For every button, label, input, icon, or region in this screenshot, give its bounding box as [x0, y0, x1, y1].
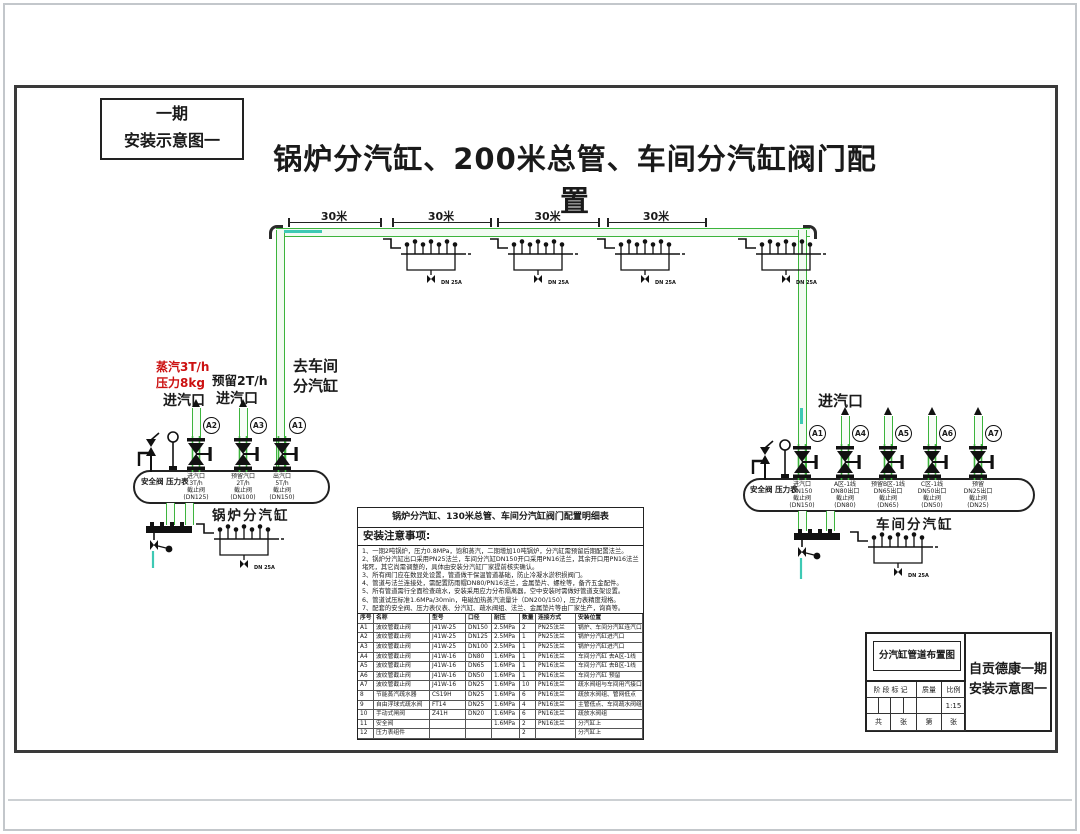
spec-cell: 车间分汽缸 预留 — [576, 672, 643, 681]
sheet-no-unit-cell: 张 — [942, 714, 966, 730]
valve-unit — [913, 444, 951, 480]
spec-cell: 2.5MPa — [492, 633, 520, 642]
steam-trap-assembly: DN 25A — [196, 521, 288, 571]
valve-tag-A3: A3 — [250, 417, 267, 434]
spec-data-row: A7波纹管截止阀J41W-16DN251.6MPa10PN16法兰疏水阀组与车间… — [358, 681, 643, 691]
spec-cell: 锅炉分汽缸进汽口 — [576, 633, 643, 642]
steam-trap-assembly: DN 25A — [383, 236, 475, 286]
valve-tag-A1: A1 — [809, 425, 826, 442]
spec-cell: 1.6MPa — [492, 701, 520, 710]
spec-cell — [492, 729, 520, 738]
valve-spec-line: 5T/h — [255, 480, 309, 487]
spec-cell: 口径 — [466, 614, 492, 623]
svg-text:DN 25A: DN 25A — [254, 565, 275, 571]
spec-cell: 安全阀 — [374, 720, 430, 729]
spec-cell: 1 — [520, 643, 536, 652]
dimension-tick — [705, 218, 707, 227]
condensate-highlight — [284, 230, 322, 233]
inlet2-label: 进汽口 — [216, 388, 258, 408]
spec-cell: PN16法兰 — [536, 691, 576, 700]
spec-cell: 9 — [358, 701, 374, 710]
valve-inlet-pipe — [239, 408, 248, 439]
spec-cell: 节能蒸汽疏水器 — [374, 691, 430, 700]
spec-data-row: 12压力表组件2分汽缸上 — [358, 729, 643, 739]
install-note: 2、锅炉分汽缸出口采用PN25法兰，车间分汽缸DN150开口采用PN16法兰，其… — [362, 556, 639, 572]
spec-cell: 1 — [520, 653, 536, 662]
spec-cell: DN100 — [466, 643, 492, 652]
valve-inlet-pipe — [884, 416, 893, 447]
spec-cell: 4 — [520, 701, 536, 710]
spec-cell: A1 — [358, 624, 374, 633]
flow-arrow-icon — [928, 407, 936, 415]
spec-cell: DN65 — [466, 662, 492, 671]
spec-cell: 锅炉分汽缸进汽口 — [576, 643, 643, 652]
install-note: 6、管道试压标准1.6MPa/30min，电磁加热蒸汽流量计（DN200/150… — [362, 597, 639, 605]
spec-cell: 耐压 — [492, 614, 520, 623]
condensate-highlight — [800, 408, 803, 424]
pipe-elbow-left-icon — [269, 225, 283, 239]
spec-cell: 1 — [520, 672, 536, 681]
valve-spec-line: 出汽口 — [255, 473, 309, 480]
steam-rate-label: 蒸汽3T/h — [156, 358, 209, 375]
spec-cell: 疏放水阀组、管网低点 — [576, 691, 643, 700]
dimension-label: 30米 — [321, 208, 347, 224]
spec-cell: 序号 — [358, 614, 374, 623]
spec-cell: 疏放水阀组 — [576, 710, 643, 719]
spec-cell — [430, 720, 466, 729]
valve-inlet-pipe — [928, 416, 937, 447]
steam-trap-assembly: DN 25A — [597, 236, 689, 286]
spec-cell: PN16法兰 — [536, 701, 576, 710]
spec-cell: PN16法兰 — [536, 681, 576, 690]
svg-text:DN 25A: DN 25A — [796, 280, 817, 286]
valve-spec-line: DN25出口 — [951, 488, 1005, 495]
stage-line1: 一期 — [102, 100, 242, 127]
install-note: 7、配套的安全阀、压力表仪表、分汽缸、疏水阀组、法兰、金属垫片等由厂家生产，询商… — [362, 605, 639, 613]
valve-spec-table: 序号名称型号口径耐压数量连接方式安装位置A1波纹管截止阀J41W-25DN150… — [358, 613, 643, 739]
spec-cell: 2 — [520, 720, 536, 729]
spec-cell: 压力表组件 — [374, 729, 430, 738]
empty-cell — [904, 698, 917, 714]
spec-cell: DN25 — [466, 701, 492, 710]
valve-unit — [224, 436, 262, 472]
dimension-tick — [497, 218, 499, 227]
spec-cell: 2 — [520, 624, 536, 633]
spec-cell: J41W-16 — [430, 681, 466, 690]
quality-cell: 质量 — [917, 682, 942, 698]
valve-unit — [959, 444, 997, 480]
project-line1: 自贡德康一期 — [966, 660, 1050, 680]
valve-tag-A1: A1 — [289, 417, 306, 434]
steam-trap-assembly-icon: DN 25A — [490, 236, 582, 286]
install-note: 5、所有管道需行全面检查疏水，安装采用应力分布隔离器，空中安装时需做好管道支架设… — [362, 588, 639, 596]
spec-cell: A3 — [358, 643, 374, 652]
spec-cell: FT14 — [430, 701, 466, 710]
spec-cell: 名称 — [374, 614, 430, 623]
spec-cell: 分汽缸上 — [576, 720, 643, 729]
globe-valve-icon — [959, 444, 997, 480]
valve-spec-line: (DN150) — [255, 494, 309, 501]
sheet-no-cell: 第 — [917, 714, 942, 730]
spec-cell: DN25 — [466, 681, 492, 690]
dimension-tick — [380, 218, 382, 227]
svg-text:DN 25A: DN 25A — [441, 280, 462, 286]
spec-cell: PN25法兰 — [536, 624, 576, 633]
valve-spec-line: 进汽口 — [169, 473, 223, 480]
valve-spec-line: 3T/h — [169, 480, 223, 487]
spec-cell: J41W-16 — [430, 662, 466, 671]
drawing-name-cell: 分汽缸管道布置图 — [873, 641, 961, 671]
spec-cell — [430, 729, 466, 738]
valve-inlet-pipe — [192, 408, 201, 439]
spec-cell: A6 — [358, 672, 374, 681]
valve-tag-A4: A4 — [852, 425, 869, 442]
to-workshop-label2: 分汽缸 — [293, 375, 338, 396]
spec-cell: 分汽缸上 — [576, 729, 643, 738]
valve-spec-line: 截止阀 — [951, 495, 1005, 502]
spec-cell: PN16法兰 — [536, 662, 576, 671]
reserve-label: 预留2T/h — [212, 370, 268, 389]
flow-arrow-icon — [239, 399, 247, 407]
engineering-drawing-canvas: 一期 安装示意图一 锅炉分汽缸、200米总管、车间分汽缸阀门配置 30米30米3… — [0, 0, 1080, 834]
valve-spec-line: 预留 — [951, 481, 1005, 488]
globe-valve-icon — [783, 444, 821, 480]
valve-tag-A6: A6 — [939, 425, 956, 442]
spec-cell: DN80 — [466, 653, 492, 662]
spec-header-row: 序号名称型号口径耐压数量连接方式安装位置 — [358, 614, 643, 624]
spec-cell: A4 — [358, 653, 374, 662]
valve-unit — [826, 444, 864, 480]
steam-trap-assembly-icon: DN 25A — [597, 236, 689, 286]
install-note: 1、一期2吨锅炉，压力0.8MPa，饱和蒸汽，二期增加10吨锅炉，分汽缸需预留后… — [362, 548, 639, 556]
stage-line2: 安装示意图一 — [102, 127, 242, 154]
svg-text:DN 25A: DN 25A — [655, 280, 676, 286]
spec-cell: J41W-25 — [430, 643, 466, 652]
spec-data-row: A3波纹管截止阀J41W-25DN1002.5MPa1PN25法兰锅炉分汽缸进汽… — [358, 643, 643, 653]
valve-spec-column: 进汽口3T/h截止阀(DN125) — [169, 473, 223, 501]
globe-valve-icon — [224, 436, 262, 472]
flow-arrow-icon — [841, 407, 849, 415]
spec-data-row: A2波纹管截止阀J41W-25DN1252.5MPa1PN25法兰锅炉分汽缸进汽… — [358, 633, 643, 643]
spec-cell: 安装位置 — [576, 614, 643, 623]
spec-data-row: A4波纹管截止阀J41W-16DN801.6MPa1PN16法兰车间分汽缸 去A… — [358, 653, 643, 663]
spec-data-row: 11安全阀1.6MPa2PN16法兰分汽缸上 — [358, 720, 643, 730]
safety-valve-icon — [746, 434, 774, 480]
spec-cell — [536, 729, 576, 738]
valve-unit — [869, 444, 907, 480]
spec-cell: 波纹管截止阀 — [374, 681, 430, 690]
spec-cell — [466, 729, 492, 738]
spec-cell: CS19H — [430, 691, 466, 700]
valve-unit — [177, 436, 215, 472]
spec-cell: 锅炉、车间分汽缸连汽口 — [576, 624, 643, 633]
globe-valve-icon — [826, 444, 864, 480]
valve-tag-A7: A7 — [985, 425, 1002, 442]
globe-valve-icon — [263, 436, 301, 472]
spec-cell: 波纹管截止阀 — [374, 633, 430, 642]
spec-cell: 10 — [520, 681, 536, 690]
spec-cell: 2.5MPa — [492, 643, 520, 652]
scale-label-cell: 比例 — [942, 682, 966, 698]
pressure-label: 压力8kg — [156, 374, 205, 391]
dimension-label: 30米 — [534, 208, 560, 224]
steam-trap-assembly-icon: DN 25A — [850, 529, 942, 579]
spec-cell: 2.5MPa — [492, 624, 520, 633]
steam-trap-assembly-icon: DN 25A — [738, 236, 830, 286]
spec-cell: 1 — [520, 662, 536, 671]
spec-cell: 波纹管截止阀 — [374, 653, 430, 662]
spec-data-row: 9自由浮球式疏水阀FT14DN251.6MPa4PN16法兰主管低点、车间疏水阀… — [358, 701, 643, 711]
valve-tag-A2: A2 — [203, 417, 220, 434]
dimension-tick — [607, 218, 609, 227]
valve-inlet-pipe — [841, 416, 850, 447]
spec-cell: 8 — [358, 691, 374, 700]
globe-valve-icon — [177, 436, 215, 472]
steam-trap-assembly-icon: DN 25A — [196, 521, 288, 571]
valve-unit — [783, 444, 821, 480]
spec-cell — [466, 720, 492, 729]
spec-cell: A5 — [358, 662, 374, 671]
spec-cell: 1.6MPa — [492, 653, 520, 662]
spec-cell: Z41H — [430, 710, 466, 719]
sheets-total-cell: 共 — [867, 714, 891, 730]
spec-cell: 型号 — [430, 614, 466, 623]
valve-spec-line: 截止阀 — [169, 487, 223, 494]
spec-data-row: A6波纹管截止阀J41W-16DN501.6MPa1PN16法兰车间分汽缸 预留 — [358, 672, 643, 682]
spec-panel: 锅炉分汽缸、130米总管、车间分汽缸阀门配置明细表 安装注意事项: 1、一期2吨… — [357, 507, 644, 740]
valve-spec-column: 出汽口5T/h截止阀(DN150) — [255, 473, 309, 501]
title-block: 分汽缸管道布置图 自贡德康一期 安装示意图一 阶段标记 质量 比例 1:15 共… — [865, 632, 1052, 732]
spec-cell: 12 — [358, 729, 374, 738]
spec-cell: PN16法兰 — [536, 653, 576, 662]
spec-data-row: A5波纹管截止阀J41W-16DN651.6MPa1PN16法兰车间分汽缸 去B… — [358, 662, 643, 672]
empty-cell — [917, 698, 942, 714]
spec-cell: J41W-25 — [430, 633, 466, 642]
spec-cell: 1.6MPa — [492, 681, 520, 690]
spec-cell: A7 — [358, 681, 374, 690]
spec-cell: 手动式闸阀 — [374, 710, 430, 719]
spec-cell: 波纹管截止阀 — [374, 672, 430, 681]
steam-trap-assembly: DN 25A — [850, 529, 942, 579]
spec-cell: J41W-16 — [430, 653, 466, 662]
sheets-total-unit-cell: 张 — [891, 714, 917, 730]
project-name-cell: 自贡德康一期 安装示意图一 — [964, 634, 1050, 730]
dimension-tick — [288, 218, 290, 227]
stage-mark-cell: 阶段标记 — [867, 682, 917, 698]
valve-tag-A5: A5 — [895, 425, 912, 442]
spec-cell: A2 — [358, 633, 374, 642]
valve-unit — [263, 436, 301, 472]
spec-cell: PN25法兰 — [536, 643, 576, 652]
valve-spec-line: (DN25) — [951, 502, 1005, 509]
steam-trap-assembly-icon: DN 25A — [383, 236, 475, 286]
spec-cell: J41W-25 — [430, 624, 466, 633]
spec-cell: 1.6MPa — [492, 662, 520, 671]
valve-inlet-pipe — [974, 416, 983, 447]
drawing-title: 锅炉分汽缸、200米总管、车间分汽缸阀门配置 — [265, 136, 885, 220]
spec-cell: 2 — [520, 729, 536, 738]
install-notes-title: 安装注意事项: — [358, 528, 643, 546]
spec-data-row: 8节能蒸汽疏水器CS19HDN251.6MPa6PN16法兰疏放水阀组、管网低点 — [358, 691, 643, 701]
valve-spec-line: 截止阀 — [255, 487, 309, 494]
spec-cell: 1 — [520, 633, 536, 642]
spec-cell: 数量 — [520, 614, 536, 623]
spec-cell: 疏水阀组与车间用汽接口 — [576, 681, 643, 690]
spec-cell: 6 — [520, 710, 536, 719]
spec-cell: 6 — [520, 691, 536, 700]
project-line2: 安装示意图一 — [966, 680, 1050, 700]
spec-cell: J41W-16 — [430, 672, 466, 681]
empty-cell — [867, 698, 879, 714]
dimension-tick — [392, 218, 394, 227]
spec-cell: PN16法兰 — [536, 672, 576, 681]
flow-arrow-icon — [884, 407, 892, 415]
globe-valve-icon — [913, 444, 951, 480]
spec-cell: 波纹管截止阀 — [374, 662, 430, 671]
spec-data-row: A1波纹管截止阀J41W-25DN1502.5MPa2PN25法兰锅炉、车间分汽… — [358, 624, 643, 634]
svg-text:DN 25A: DN 25A — [908, 573, 929, 579]
dimension-label: 30米 — [428, 208, 454, 224]
spec-cell: 波纹管截止阀 — [374, 643, 430, 652]
spec-cell: DN25 — [466, 691, 492, 700]
page-bottom-edge — [8, 799, 1072, 801]
flow-arrow-icon — [192, 399, 200, 407]
spec-cell: 自由浮球式疏水阀 — [374, 701, 430, 710]
scale-value-cell: 1:15 — [942, 698, 966, 714]
spec-cell: 1.6MPa — [492, 691, 520, 700]
spec-cell: DN125 — [466, 633, 492, 642]
spec-cell: DN50 — [466, 672, 492, 681]
spec-cell: 连接方式 — [536, 614, 576, 623]
spec-cell: DN20 — [466, 710, 492, 719]
dimension-label: 30米 — [643, 208, 669, 224]
spec-table-title: 锅炉分汽缸、130米总管、车间分汽缸阀门配置明细表 — [358, 508, 643, 528]
globe-valve-icon — [869, 444, 907, 480]
spec-cell: PN16法兰 — [536, 720, 576, 729]
spec-cell: 1.6MPa — [492, 720, 520, 729]
spec-cell: 波纹管截止阀 — [374, 624, 430, 633]
steam-trap-assembly: DN 25A — [738, 236, 830, 286]
spec-cell: 1.6MPa — [492, 672, 520, 681]
safety-valve-icon — [132, 426, 160, 472]
dimension-tick — [598, 218, 600, 227]
spec-cell: 11 — [358, 720, 374, 729]
spec-cell: 车间分汽缸 去A区-1线 — [576, 653, 643, 662]
flow-arrow-icon — [974, 407, 982, 415]
spec-cell: DN150 — [466, 624, 492, 633]
empty-cell — [891, 698, 904, 714]
spec-cell: PN25法兰 — [536, 633, 576, 642]
spec-cell: 车间分汽缸 去B区-1线 — [576, 662, 643, 671]
svg-text:DN 25A: DN 25A — [548, 280, 569, 286]
valve-spec-column: 预留DN25出口截止阀(DN25) — [951, 481, 1005, 509]
title-block-grid: 阶段标记 质量 比例 1:15 共 张 第 张 — [867, 680, 966, 730]
valve-spec-line: (DN125) — [169, 494, 223, 501]
spec-cell: 10 — [358, 710, 374, 719]
spec-cell: PN16法兰 — [536, 710, 576, 719]
spec-cell: 主管低点、车间疏水阀组 — [576, 701, 643, 710]
stage-box: 一期 安装示意图一 — [100, 98, 244, 160]
empty-cell — [879, 698, 891, 714]
spec-data-row: 10手动式闸阀Z41HDN201.6MPa6PN16法兰疏放水阀组 — [358, 710, 643, 720]
dimension-tick — [490, 218, 492, 227]
steam-trap-assembly: DN 25A — [490, 236, 582, 286]
spec-cell: 1.6MPa — [492, 710, 520, 719]
to-workshop-label1: 去车间 — [293, 355, 338, 376]
